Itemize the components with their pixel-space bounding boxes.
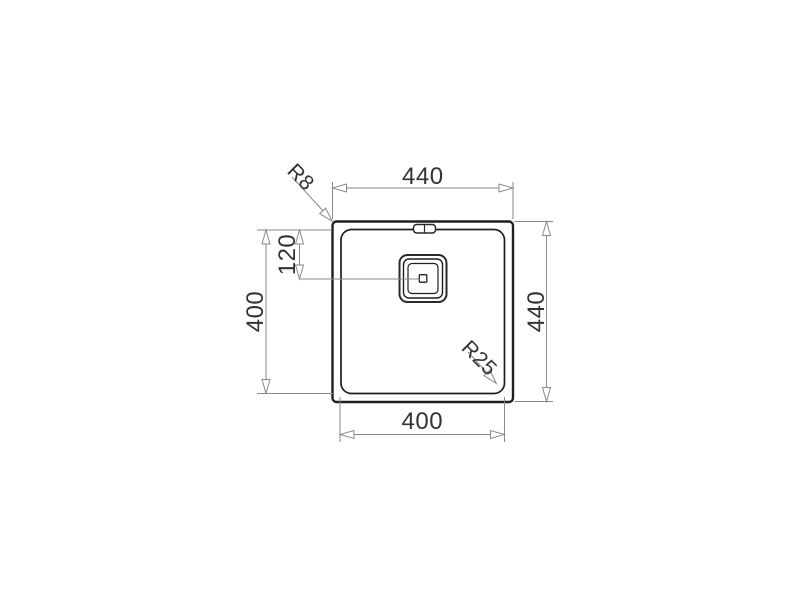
dim-label-drain-offset: 120 bbox=[274, 234, 301, 276]
overflow-slot bbox=[414, 225, 436, 234]
dim-label-outer-width: 440 bbox=[402, 163, 444, 190]
sink-technical-drawing: 440 440 400 120 bbox=[0, 0, 800, 600]
dim-label-bowl-height: 400 bbox=[242, 291, 269, 333]
dim-label-outer-height: 440 bbox=[523, 291, 550, 333]
dim-label-bowl-width: 400 bbox=[402, 408, 444, 435]
canvas-background bbox=[0, 0, 800, 600]
